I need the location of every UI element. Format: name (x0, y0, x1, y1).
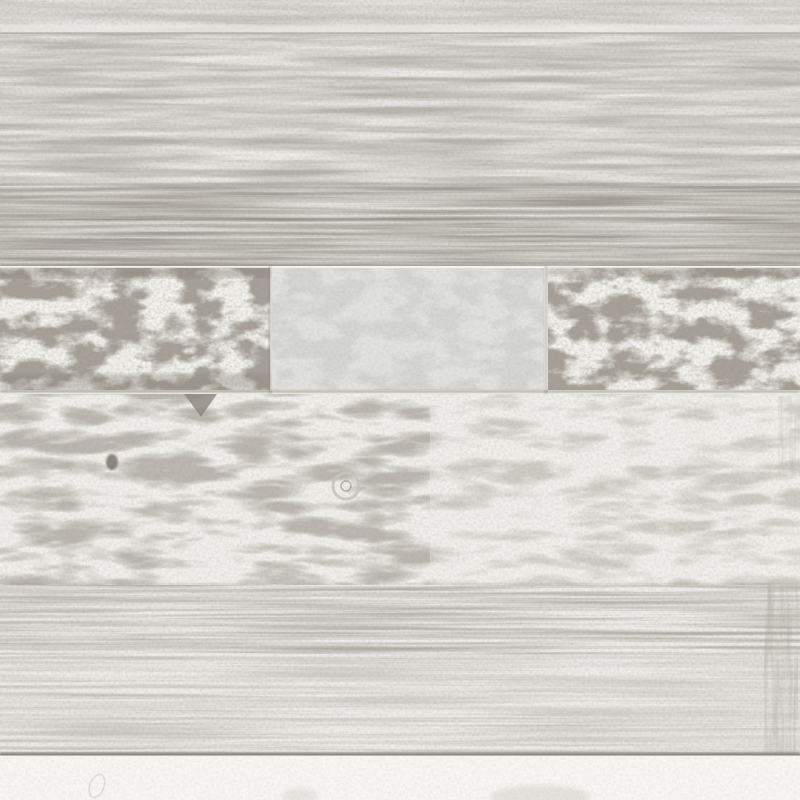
board-seam-2 (544, 266, 548, 394)
plank-gap-line-2 (0, 183, 800, 186)
plank-7-speckle (0, 756, 800, 800)
board-left-top-smear (0, 268, 270, 278)
wood-plank-texture (0, 0, 800, 800)
plank-3-speckle (0, 186, 800, 266)
plank-gap-line-5 (0, 583, 800, 585)
board-left-bottom-smear (0, 374, 270, 390)
dark-knot (106, 454, 118, 470)
board-right-top-smear (548, 268, 800, 276)
plank-5-speckle (0, 394, 800, 585)
right-edge-band (764, 585, 798, 755)
screenshot-root (0, 0, 800, 800)
plank-gap-line-6-sharp (0, 754, 800, 755)
plank-6-speckle (0, 585, 800, 755)
board-seam-1 (268, 266, 272, 394)
board-left-speckle (0, 268, 270, 390)
plank-1-light-band (0, 25, 800, 33)
right-edge-marks-upper (778, 396, 796, 476)
board-center-speckle (272, 268, 544, 390)
plank-2-speckle (0, 34, 800, 186)
plank-gap-line-4 (0, 390, 800, 393)
board-right-speckle (548, 268, 800, 390)
